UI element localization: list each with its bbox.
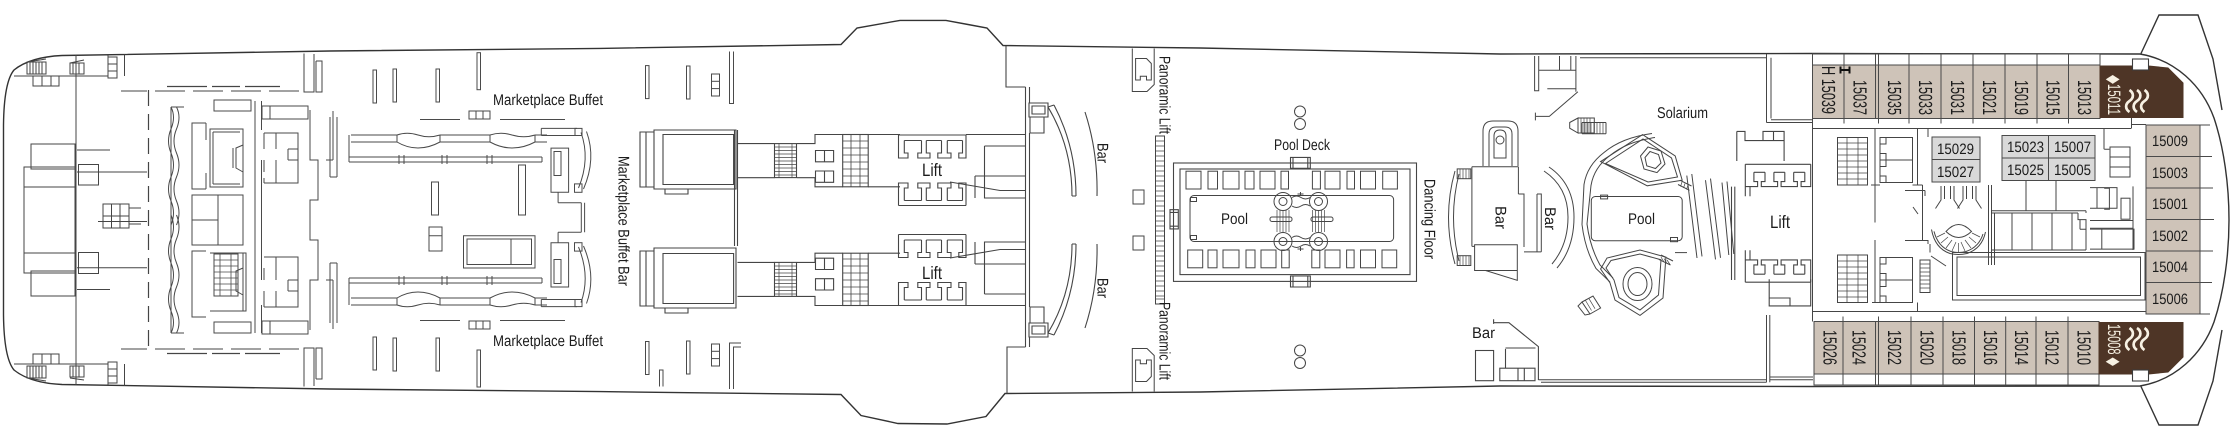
svg-text:Dancing Floor: Dancing Floor	[1421, 179, 1438, 259]
svg-text:15025: 15025	[2007, 162, 2044, 179]
svg-text:15016: 15016	[1979, 330, 2000, 365]
svg-text:◆15011: ◆15011	[2104, 75, 2124, 115]
svg-text:Bar: Bar	[1541, 207, 1558, 230]
svg-text:15027: 15027	[1937, 164, 1974, 181]
svg-text:15002: 15002	[2152, 228, 2188, 245]
svg-text:15026: 15026	[1819, 330, 1840, 365]
svg-text:Lift: Lift	[1770, 212, 1790, 232]
svg-text:15010: 15010	[2073, 330, 2094, 365]
svg-text:Pool Deck: Pool Deck	[1274, 137, 1330, 154]
svg-text:Lift: Lift	[922, 160, 942, 180]
svg-text:Marketplace Buffet: Marketplace Buffet	[493, 333, 604, 350]
svg-text:15013: 15013	[2073, 80, 2094, 115]
svg-text:15035: 15035	[1883, 80, 1904, 115]
svg-text:Pool: Pool	[1221, 211, 1248, 228]
svg-text:15012: 15012	[2041, 330, 2062, 365]
svg-text:Bar: Bar	[1094, 278, 1111, 298]
svg-text:15022: 15022	[1883, 330, 1904, 365]
svg-text:Marketplace Buffet: Marketplace Buffet	[493, 92, 604, 109]
svg-text:15018: 15018	[1948, 330, 1969, 365]
svg-text:15005: 15005	[2054, 162, 2091, 179]
svg-text:15004: 15004	[2152, 259, 2188, 276]
svg-text:Bar: Bar	[1094, 143, 1111, 163]
svg-text:15024: 15024	[1848, 330, 1869, 365]
svg-text:Lift: Lift	[922, 263, 942, 283]
svg-text:15021: 15021	[1978, 80, 1999, 115]
svg-text:15003: 15003	[2152, 165, 2188, 182]
svg-text:Panoramic Lift: Panoramic Lift	[1156, 56, 1173, 135]
svg-text:Pool: Pool	[1628, 211, 1655, 228]
svg-text:15033: 15033	[1914, 80, 1935, 115]
svg-text:15019: 15019	[2010, 80, 2031, 115]
svg-text:Solarium: Solarium	[1657, 105, 1708, 122]
svg-text:15014: 15014	[2010, 330, 2031, 365]
svg-text:Bar: Bar	[1492, 206, 1509, 229]
svg-text:15001: 15001	[2152, 196, 2188, 213]
svg-text:Marketplace Buffet Bar: Marketplace Buffet Bar	[615, 156, 632, 286]
svg-text:15037: 15037	[1849, 80, 1870, 115]
svg-text:Bar: Bar	[1472, 325, 1495, 342]
svg-text:H 15039: H 15039	[1817, 66, 1838, 114]
svg-text:15006: 15006	[2152, 291, 2188, 308]
svg-text:15023: 15023	[2007, 139, 2044, 156]
svg-text:15031: 15031	[1946, 80, 1967, 115]
svg-text:15008 ◆: 15008 ◆	[2104, 324, 2124, 366]
svg-text:15015: 15015	[2042, 80, 2063, 115]
svg-text:15029: 15029	[1937, 141, 1974, 158]
svg-text:15007: 15007	[2054, 139, 2091, 156]
svg-text:Panoramic Lift: Panoramic Lift	[1156, 302, 1173, 381]
svg-text:15009: 15009	[2152, 133, 2188, 150]
svg-text:15020: 15020	[1916, 330, 1937, 365]
